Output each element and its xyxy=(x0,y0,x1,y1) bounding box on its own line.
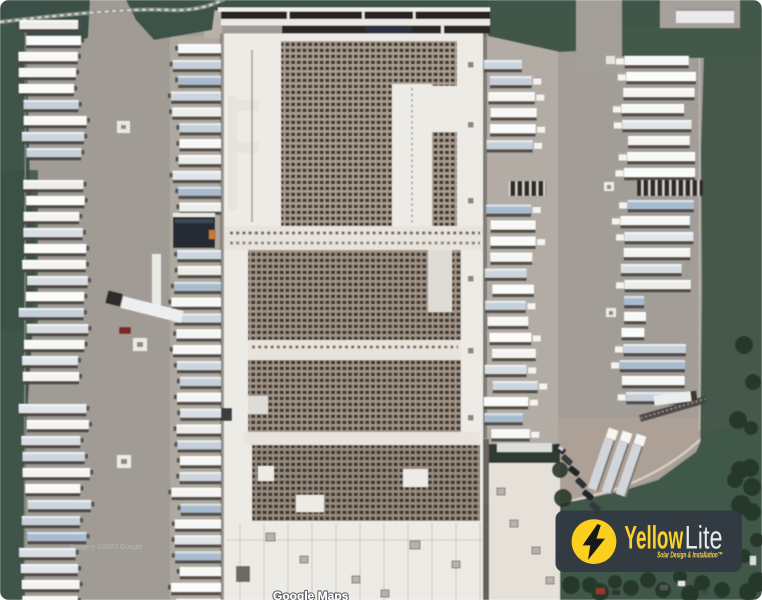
svg-text:Solar Design & Installation™: Solar Design & Installation™ xyxy=(657,551,722,559)
svg-text:Imagery ©2023 Google: Imagery ©2023 Google xyxy=(70,543,143,551)
svg-text:Lite: Lite xyxy=(685,520,723,555)
svg-text:Yellow: Yellow xyxy=(624,519,683,556)
svg-text:Google Maps: Google Maps xyxy=(273,589,349,600)
